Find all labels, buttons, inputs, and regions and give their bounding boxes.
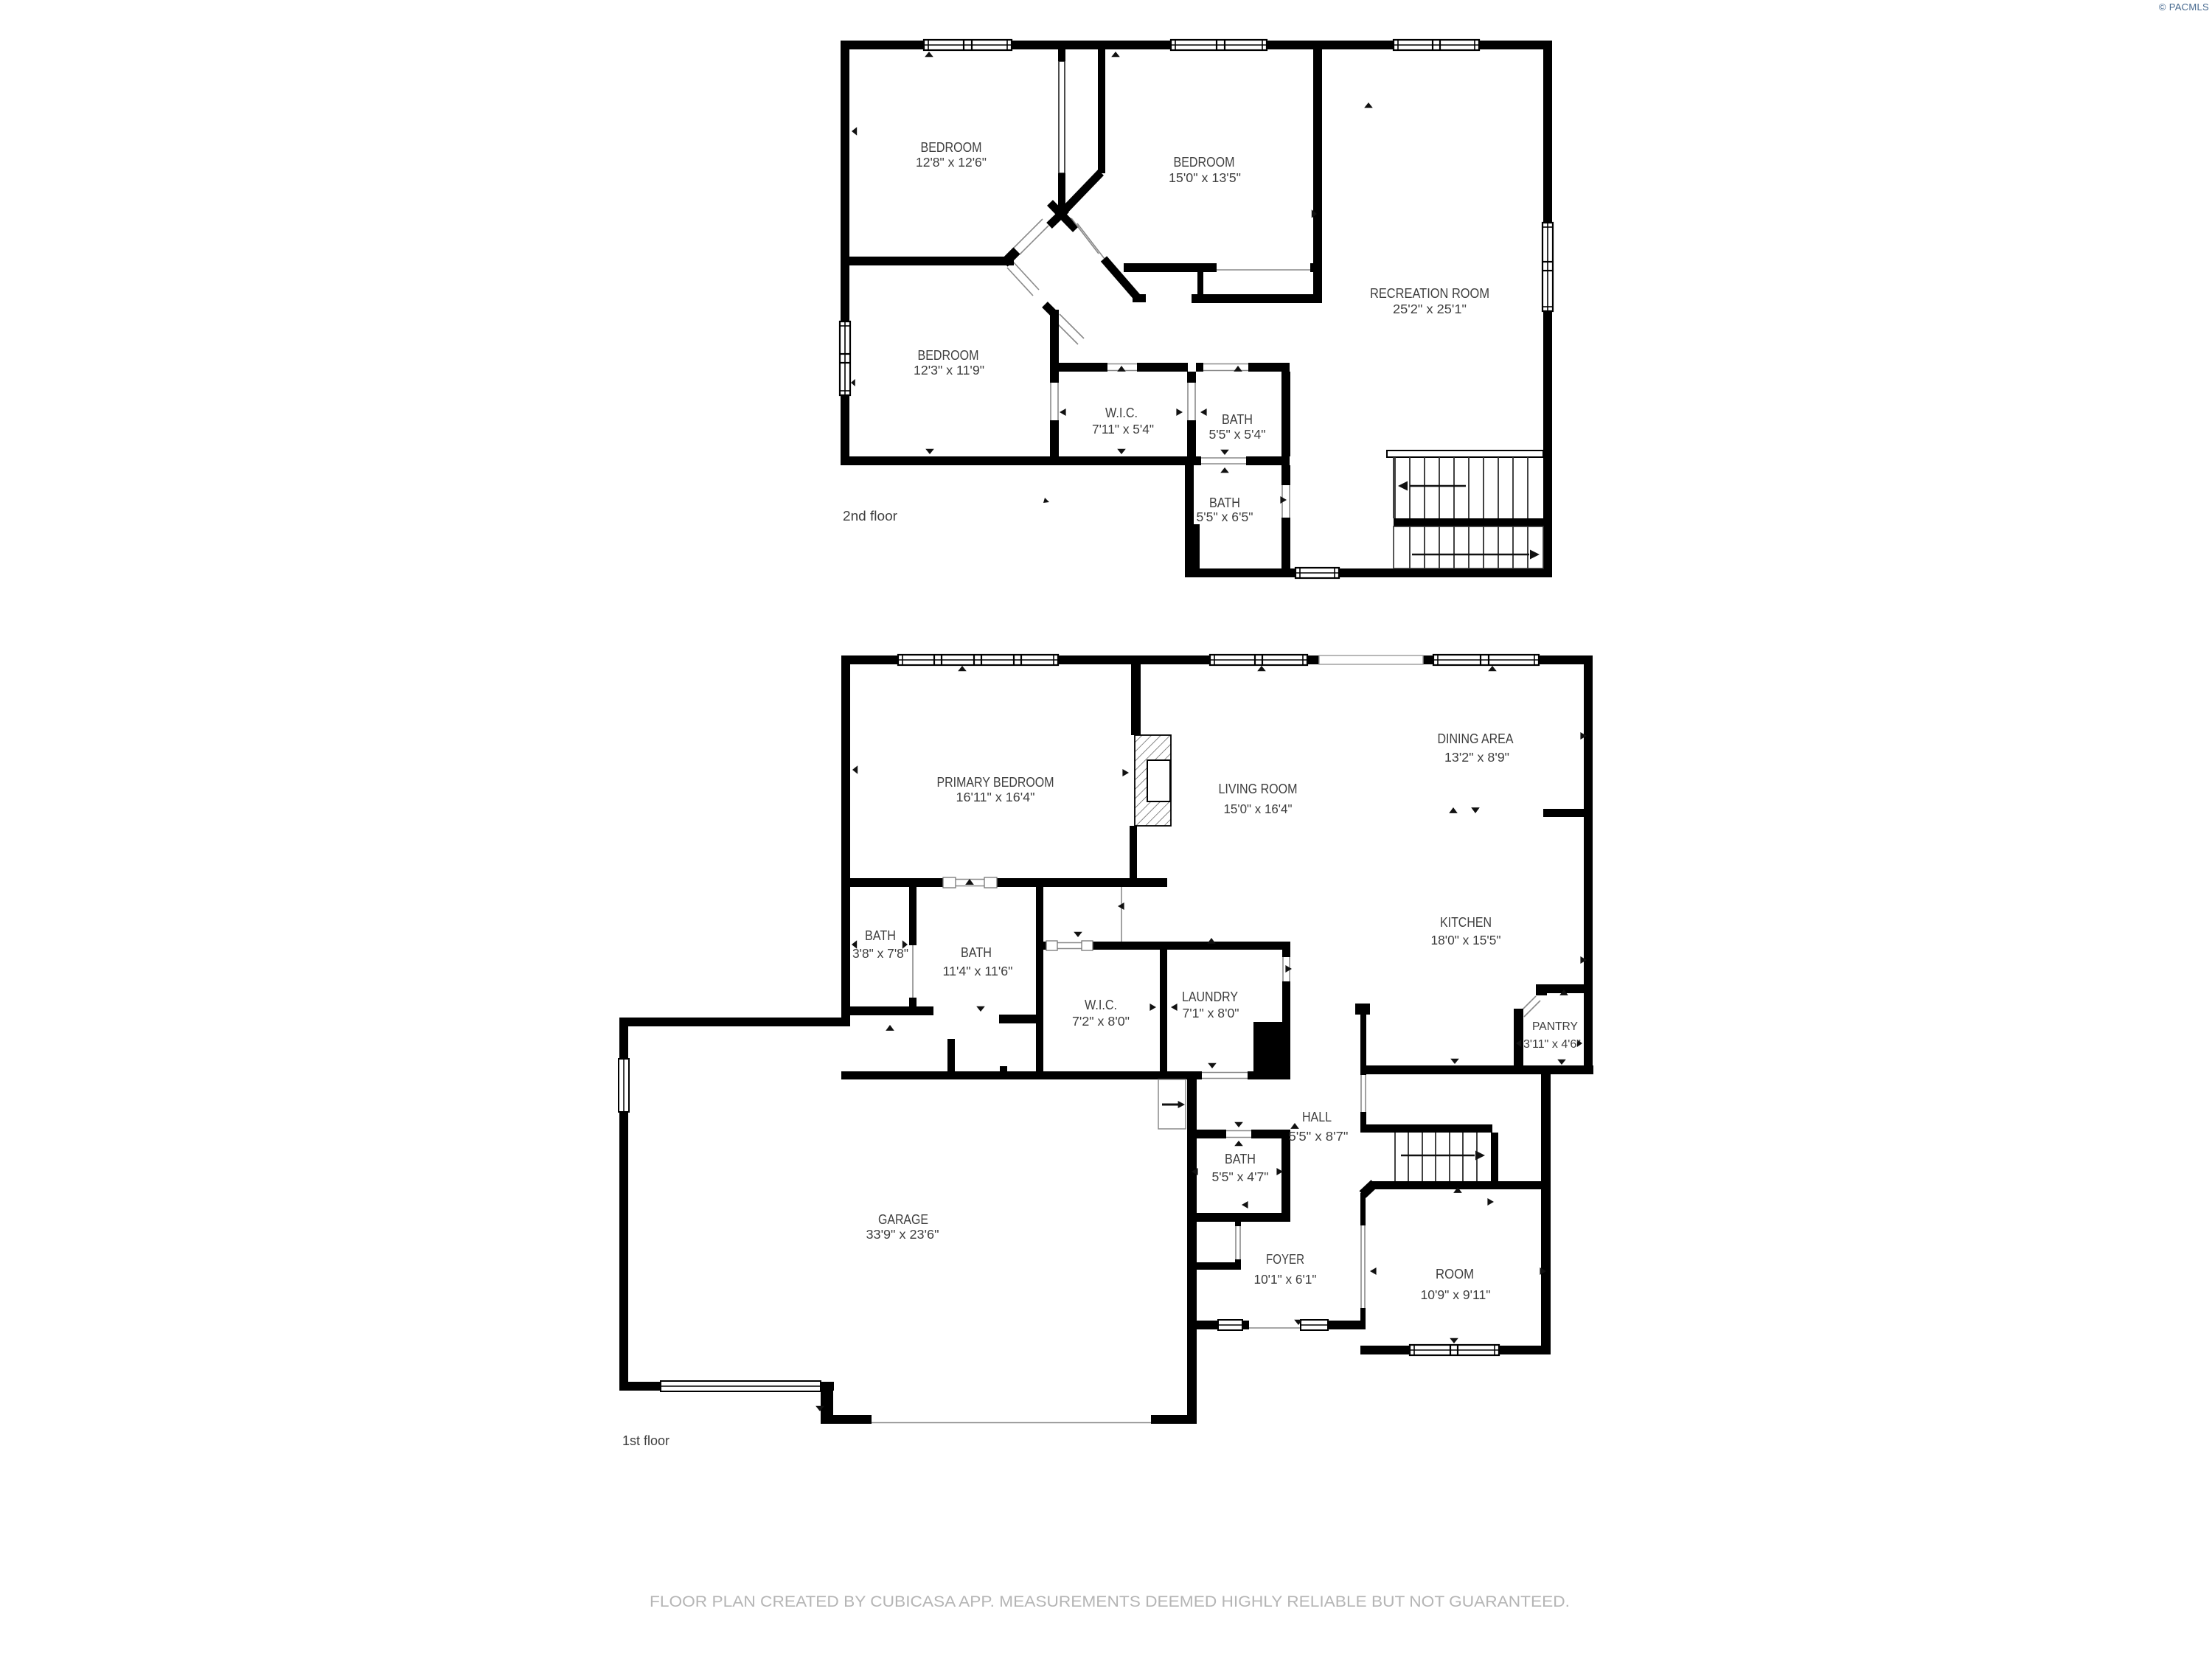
svg-text:7'11" x 5'4": 7'11" x 5'4" (1092, 422, 1154, 437)
svg-text:© PACMLS: © PACMLS (2159, 1, 2209, 13)
svg-text:BATH: BATH (961, 945, 992, 960)
svg-text:W.I.C.: W.I.C. (1105, 406, 1138, 420)
svg-text:1st floor: 1st floor (622, 1433, 669, 1448)
svg-text:BATH: BATH (1209, 495, 1240, 510)
svg-text:KITCHEN: KITCHEN (1440, 915, 1492, 930)
svg-text:HALL: HALL (1302, 1110, 1332, 1124)
svg-text:12'3" x 11'9": 12'3" x 11'9" (914, 363, 984, 378)
svg-text:15'0" x 13'5": 15'0" x 13'5" (1169, 170, 1241, 185)
svg-text:FOYER: FOYER (1266, 1252, 1304, 1267)
svg-text:2nd floor: 2nd floor (843, 509, 897, 524)
svg-text:3'11" x 4'6": 3'11" x 4'6" (1523, 1038, 1581, 1051)
svg-text:7'1" x 8'0": 7'1" x 8'0" (1183, 1006, 1239, 1020)
svg-text:BATH: BATH (1225, 1152, 1256, 1166)
svg-text:BEDROOM: BEDROOM (1174, 155, 1235, 170)
svg-text:PANTRY: PANTRY (1532, 1020, 1578, 1033)
svg-text:33'9" x 23'6": 33'9" x 23'6" (866, 1227, 939, 1242)
svg-text:RECREATION ROOM: RECREATION ROOM (1370, 286, 1489, 301)
svg-text:18'0" x 15'5": 18'0" x 15'5" (1431, 933, 1501, 947)
svg-text:5'5" x 6'5": 5'5" x 6'5" (1197, 509, 1253, 524)
svg-text:15'0" x 16'4": 15'0" x 16'4" (1224, 801, 1293, 816)
svg-text:5'5" x 5'4": 5'5" x 5'4" (1209, 427, 1266, 442)
svg-text:3'8" x 7'8": 3'8" x 7'8" (852, 946, 908, 961)
svg-text:BEDROOM: BEDROOM (918, 348, 979, 363)
svg-text:ROOM: ROOM (1436, 1267, 1474, 1281)
svg-text:16'11" x 16'4": 16'11" x 16'4" (956, 790, 1035, 804)
svg-text:12'8" x 12'6": 12'8" x 12'6" (916, 155, 987, 170)
svg-text:BATH: BATH (1222, 412, 1253, 427)
svg-text:5'5" x 8'7": 5'5" x 8'7" (1289, 1129, 1349, 1144)
svg-text:7'2" x 8'0": 7'2" x 8'0" (1072, 1014, 1130, 1029)
svg-text:W.I.C.: W.I.C. (1085, 998, 1117, 1012)
svg-text:BEDROOM: BEDROOM (921, 140, 982, 155)
svg-text:5'5" x 4'7": 5'5" x 4'7" (1212, 1169, 1269, 1184)
svg-text:10'9" x 9'11": 10'9" x 9'11" (1421, 1287, 1491, 1302)
svg-text:LIVING ROOM: LIVING ROOM (1219, 782, 1298, 796)
svg-text:25'2" x 25'1": 25'2" x 25'1" (1393, 302, 1467, 316)
svg-text:LAUNDRY: LAUNDRY (1182, 990, 1238, 1004)
svg-text:10'1" x 6'1": 10'1" x 6'1" (1254, 1272, 1317, 1287)
svg-text:DINING AREA: DINING AREA (1438, 731, 1514, 746)
svg-text:PRIMARY BEDROOM: PRIMARY BEDROOM (937, 775, 1054, 790)
svg-text:11'4" x 11'6": 11'4" x 11'6" (943, 964, 1013, 978)
svg-text:13'2" x 8'9": 13'2" x 8'9" (1444, 750, 1509, 765)
svg-text:BATH: BATH (865, 928, 896, 943)
svg-text:GARAGE: GARAGE (878, 1212, 928, 1227)
svg-text:FLOOR PLAN CREATED BY CUBICASA: FLOOR PLAN CREATED BY CUBICASA APP. MEAS… (650, 1593, 1570, 1610)
